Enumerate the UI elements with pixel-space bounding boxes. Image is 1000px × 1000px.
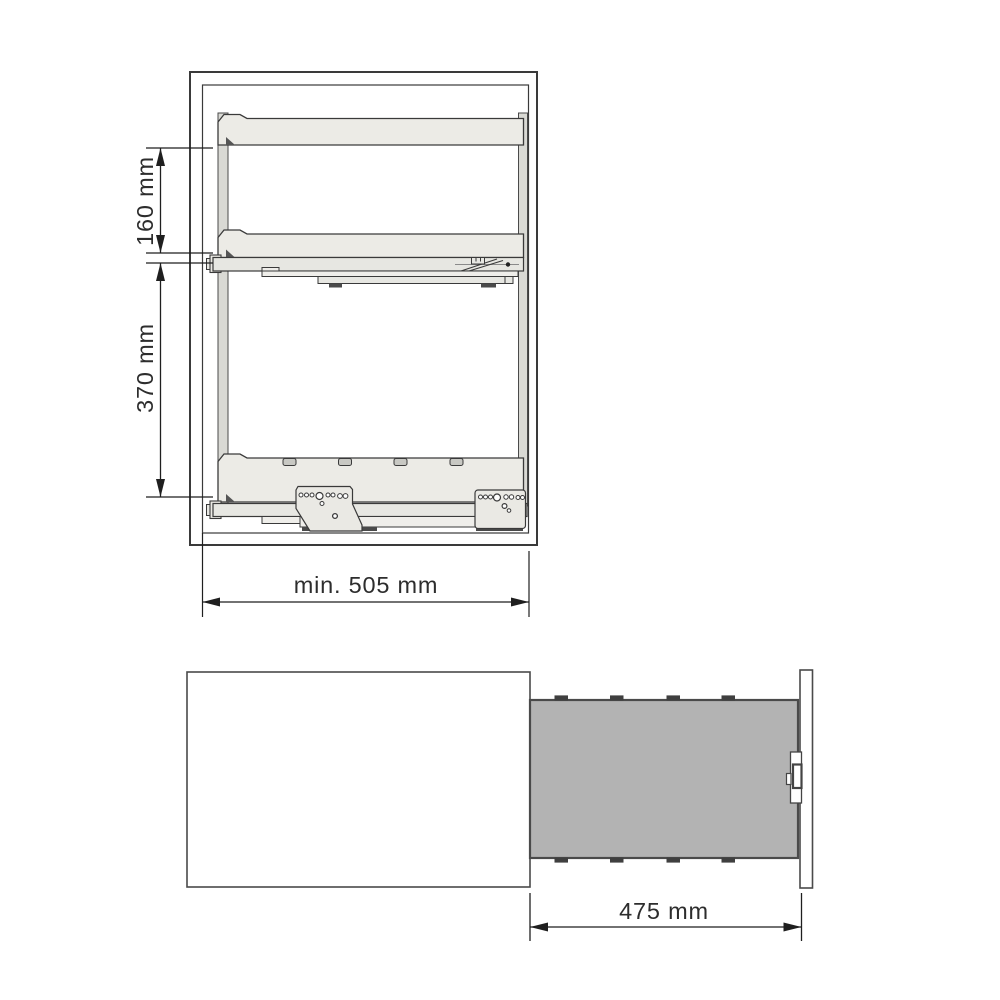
cabinet-plan: [187, 672, 530, 887]
shelf-slot: [283, 459, 296, 466]
top-shelf: [218, 115, 524, 146]
dimension-475mm: 475 mm: [530, 893, 802, 941]
fixing-dot: [506, 262, 510, 266]
front-view: 160 mm 370 mm min. 505 mm: [132, 72, 537, 617]
right-upright: [519, 113, 528, 506]
rail-tab: [610, 858, 624, 863]
arrowhead-right-icon: [784, 923, 802, 932]
rail-tab: [555, 858, 569, 863]
rail-tab: [555, 695, 569, 700]
shelf-slot: [394, 459, 407, 466]
arrowhead-left-icon: [530, 923, 548, 932]
rail-tab: [667, 695, 681, 700]
slide-foot: [329, 284, 342, 288]
arrowhead-up-icon: [156, 263, 165, 281]
middle-shelf: [218, 230, 524, 258]
mounting-bracket-left: [296, 487, 362, 532]
arrowhead-down-icon: [156, 479, 165, 497]
inner-slide: [318, 277, 512, 284]
left-upright: [218, 113, 228, 506]
dim-label-min-505mm: min. 505 mm: [294, 572, 439, 598]
pullout-plan: [530, 695, 798, 862]
rail-tab: [667, 858, 681, 863]
dim-label-160mm: 160 mm: [132, 156, 158, 246]
rail-tab: [722, 695, 736, 700]
top-view: 475 mm: [187, 670, 813, 941]
telescopic-rail: [262, 271, 518, 277]
shelf-slot: [450, 459, 463, 466]
technical-drawing-sheet: 160 mm 370 mm min. 505 mm: [0, 0, 1000, 1000]
slide-foot: [361, 527, 377, 531]
rail-tab: [722, 858, 736, 863]
mounting-bracket-right: [475, 490, 526, 529]
damper-block: [472, 258, 485, 265]
arrowhead-left-icon: [203, 598, 221, 607]
slide-foot: [481, 284, 496, 288]
dim-label-475mm: 475 mm: [619, 898, 709, 924]
shelf-slot: [339, 459, 352, 466]
dim-label-370mm: 370 mm: [132, 323, 158, 413]
rail-tab: [610, 695, 624, 700]
drawing-canvas: 160 mm 370 mm min. 505 mm: [0, 0, 1000, 1000]
arrowhead-right-icon: [511, 598, 529, 607]
